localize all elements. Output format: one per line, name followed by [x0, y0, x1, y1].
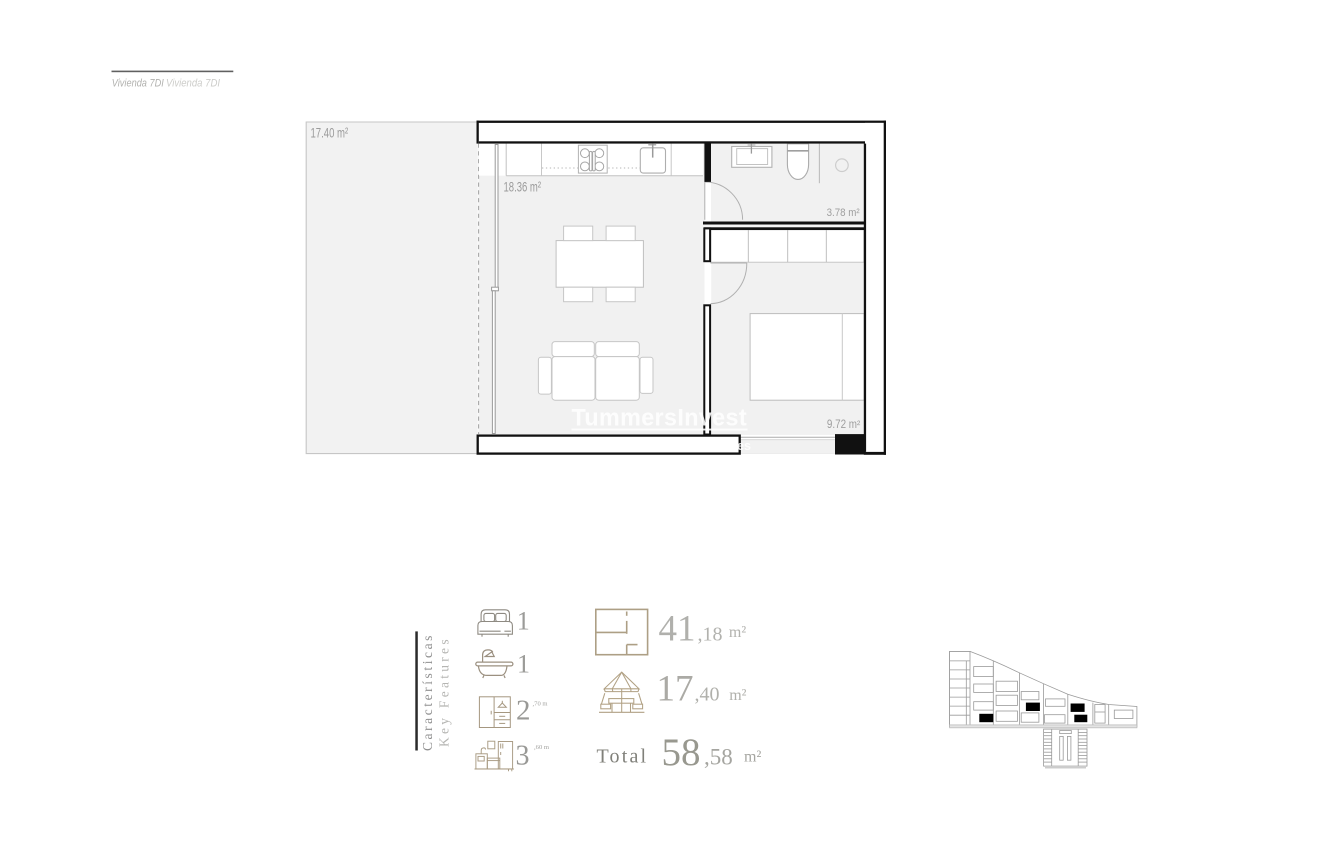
svg-text:Características: Características: [420, 634, 435, 751]
svg-text:,40: ,40: [695, 683, 720, 705]
svg-text:m²: m²: [744, 749, 761, 766]
svg-text:,58: ,58: [704, 745, 733, 770]
svg-text:m²: m²: [729, 687, 746, 704]
svg-text:17: 17: [657, 668, 694, 709]
svg-text:Vivienda 7DI: Vivienda 7DI: [166, 78, 220, 90]
svg-text:2: 2: [516, 694, 531, 726]
svg-text:17.40 m²: 17.40 m²: [311, 125, 349, 141]
svg-text:1: 1: [517, 649, 530, 678]
svg-text:9.72 m²: 9.72 m²: [827, 419, 861, 431]
svg-text:1: 1: [517, 607, 530, 636]
svg-text:3.78 m²: 3.78 m²: [827, 207, 860, 219]
svg-text:Key Features: Key Features: [437, 637, 452, 747]
svg-text:,70 m: ,70 m: [533, 700, 549, 707]
svg-text:3: 3: [516, 740, 530, 771]
svg-text:58: 58: [662, 731, 701, 774]
svg-text:Vivienda 7DI: Vivienda 7DI: [112, 78, 164, 90]
svg-text:m²: m²: [729, 624, 746, 641]
svg-text:,60 m: ,60 m: [534, 744, 550, 751]
svg-text:,18: ,18: [698, 623, 723, 645]
svg-text:TummersInvest: TummersInvest: [572, 405, 748, 432]
svg-text:Total: Total: [597, 746, 649, 768]
svg-text:41: 41: [659, 608, 696, 649]
svg-text:18.36 m²: 18.36 m²: [504, 180, 542, 196]
svg-text:es: es: [737, 439, 751, 453]
